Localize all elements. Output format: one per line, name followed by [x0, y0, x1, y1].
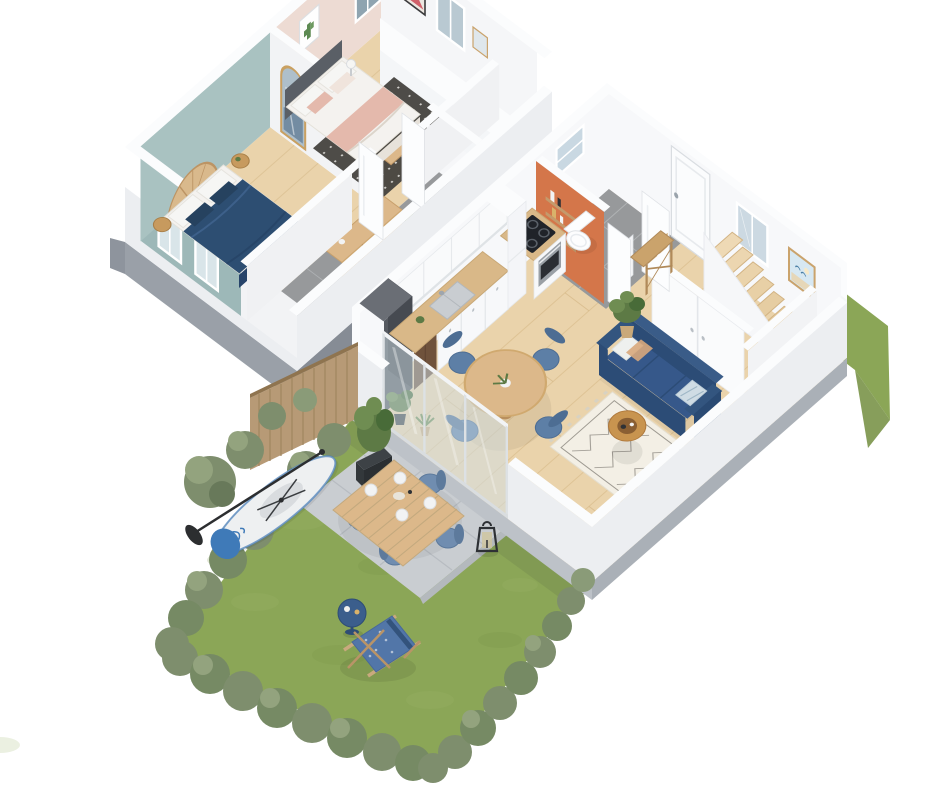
upper-plinth-w-wedge	[110, 238, 125, 274]
floorplan-render: 3D isometric floor plan — two-storey dup…	[0, 0, 941, 800]
plate	[424, 497, 436, 509]
bottle	[408, 490, 412, 494]
plate	[394, 472, 406, 484]
serving-bowl	[393, 492, 405, 500]
floorplan-stage: 3D isometric floor plan — two-storey dup…	[0, 0, 941, 800]
plate	[396, 509, 408, 521]
plate	[365, 484, 377, 496]
tall-cupboard-front	[508, 201, 526, 309]
bedroom2-door	[402, 113, 424, 210]
sofa-arm-face	[599, 343, 608, 382]
